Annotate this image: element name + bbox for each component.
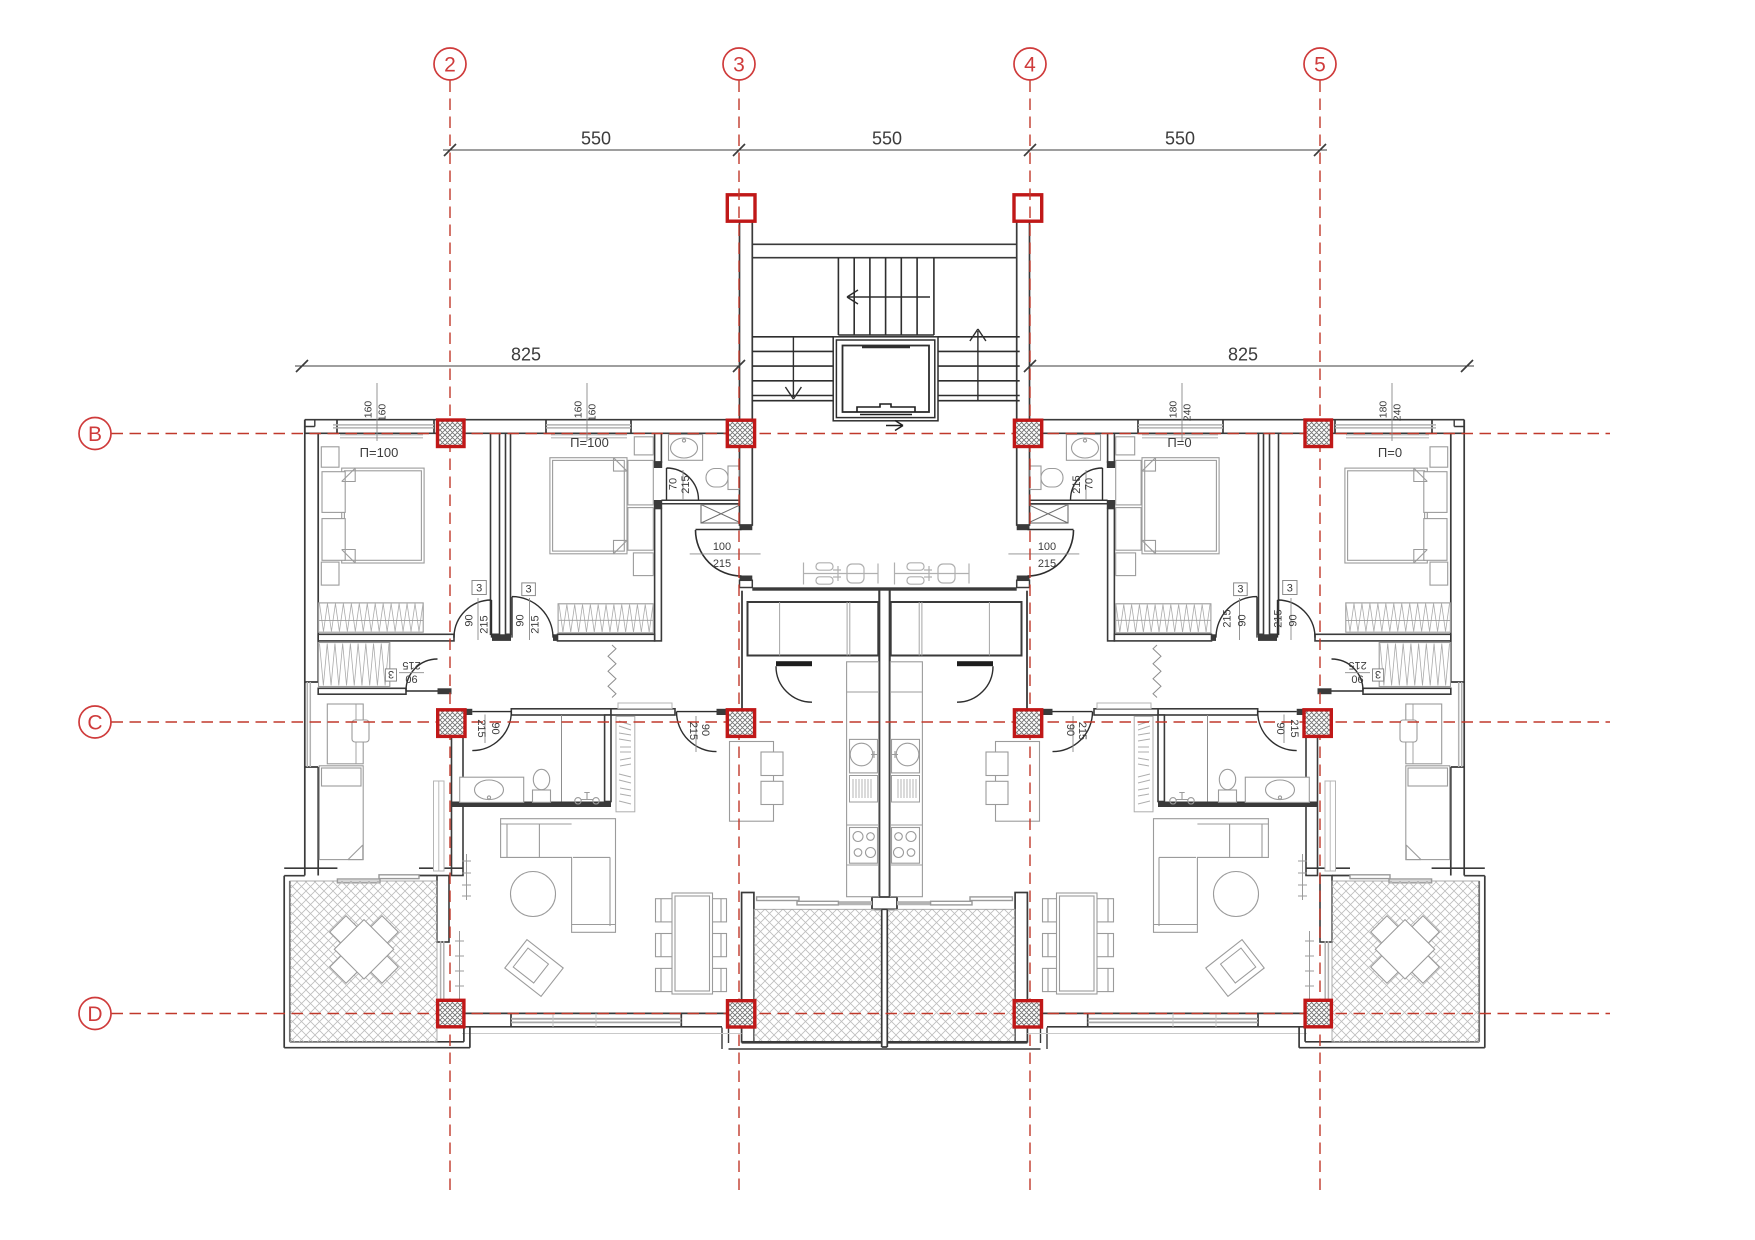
svg-text:90: 90 xyxy=(514,614,526,626)
svg-text:215: 215 xyxy=(713,558,731,570)
svg-text:3: 3 xyxy=(526,584,532,596)
svg-text:215: 215 xyxy=(1221,609,1233,627)
svg-text:160: 160 xyxy=(377,404,389,422)
svg-text:Π=0: Π=0 xyxy=(1167,435,1191,450)
svg-text:C: C xyxy=(87,712,102,735)
svg-text:2: 2 xyxy=(444,54,456,77)
svg-text:90: 90 xyxy=(489,722,501,734)
svg-text:D: D xyxy=(87,1003,102,1026)
svg-text:70: 70 xyxy=(1084,478,1096,490)
svg-text:4: 4 xyxy=(1024,54,1036,77)
svg-text:3: 3 xyxy=(1287,583,1293,595)
svg-text:240: 240 xyxy=(1182,404,1194,422)
svg-text:90: 90 xyxy=(1274,722,1286,734)
svg-text:B: B xyxy=(88,423,102,446)
svg-text:215: 215 xyxy=(402,659,420,671)
svg-text:100: 100 xyxy=(713,541,731,553)
svg-text:180: 180 xyxy=(1168,401,1180,419)
svg-text:550: 550 xyxy=(581,129,611,149)
svg-text:215: 215 xyxy=(1076,722,1088,740)
svg-text:550: 550 xyxy=(872,129,902,149)
svg-text:90: 90 xyxy=(1237,614,1249,626)
svg-text:160: 160 xyxy=(363,401,375,419)
svg-text:Π=0: Π=0 xyxy=(1378,445,1402,460)
svg-text:550: 550 xyxy=(1165,129,1195,149)
svg-text:215: 215 xyxy=(1348,659,1366,671)
svg-text:90: 90 xyxy=(699,724,711,736)
svg-text:70: 70 xyxy=(668,478,680,490)
svg-text:215: 215 xyxy=(530,615,542,633)
svg-text:215: 215 xyxy=(1071,475,1083,493)
svg-text:3: 3 xyxy=(1237,584,1243,596)
svg-text:Π=100: Π=100 xyxy=(570,435,609,450)
svg-text:215: 215 xyxy=(1273,609,1285,627)
svg-text:825: 825 xyxy=(1228,345,1258,365)
svg-text:Π=100: Π=100 xyxy=(360,445,399,460)
svg-text:3: 3 xyxy=(388,668,394,680)
svg-text:215: 215 xyxy=(680,475,692,493)
svg-text:215: 215 xyxy=(475,719,487,737)
svg-text:215: 215 xyxy=(687,722,699,740)
svg-text:90: 90 xyxy=(1064,724,1076,736)
svg-text:90: 90 xyxy=(1351,673,1363,685)
svg-text:215: 215 xyxy=(1038,558,1056,570)
svg-text:100: 100 xyxy=(1038,541,1056,553)
svg-text:240: 240 xyxy=(1392,404,1404,422)
svg-text:160: 160 xyxy=(587,404,599,422)
svg-text:5: 5 xyxy=(1314,54,1326,77)
svg-text:90: 90 xyxy=(1288,614,1300,626)
svg-text:3: 3 xyxy=(1375,668,1381,680)
svg-text:180: 180 xyxy=(1378,401,1390,419)
svg-text:3: 3 xyxy=(733,54,745,77)
svg-text:90: 90 xyxy=(405,673,417,685)
svg-text:215: 215 xyxy=(479,615,491,633)
svg-text:160: 160 xyxy=(573,401,585,419)
svg-text:215: 215 xyxy=(1288,719,1300,737)
svg-text:3: 3 xyxy=(476,583,482,595)
svg-text:90: 90 xyxy=(463,614,475,626)
svg-text:825: 825 xyxy=(511,345,541,365)
